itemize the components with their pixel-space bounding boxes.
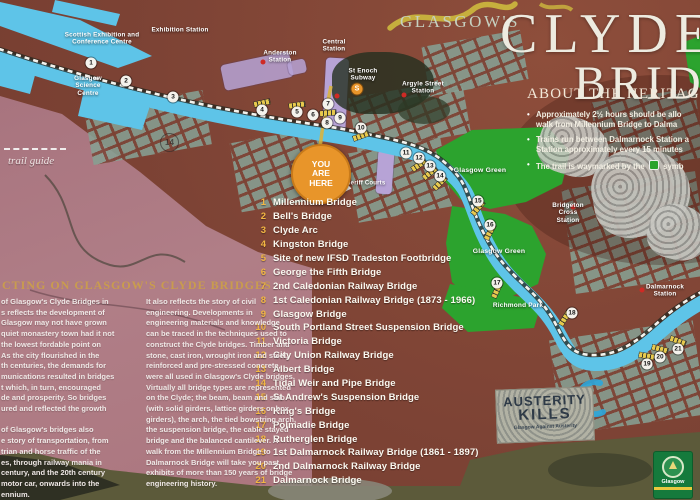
you-are-here-marker: YOU ARE HERE bbox=[291, 144, 351, 204]
bullet-text: symb bbox=[661, 162, 684, 171]
trail-marker-7: 7 bbox=[323, 99, 334, 110]
crest-strip bbox=[654, 487, 692, 490]
dark-patch bbox=[548, 453, 652, 487]
bridge-number: 3 bbox=[250, 225, 266, 236]
bridge-name: Millennium Bridge bbox=[273, 197, 357, 208]
bridge-number: 2 bbox=[250, 211, 266, 222]
heritage-bullet: Trains run between Dalmarnock Station a … bbox=[527, 135, 700, 155]
trail-marker-9: 9 bbox=[335, 113, 346, 124]
map-label: Exhibition Station bbox=[151, 26, 208, 33]
crest-label: Glasgow bbox=[654, 479, 692, 485]
information-board-photo: 14 trail guide Scottish Exhibition and C… bbox=[0, 0, 700, 500]
bridge-list-row: 3Clyde Arc bbox=[250, 224, 485, 238]
bridge-name: Bell's Bridge bbox=[273, 211, 332, 222]
bridge-list-row: 5Site of new IFSD Tradeston Footbridge bbox=[250, 252, 485, 266]
glasgow-crest-logo: Glasgow bbox=[653, 451, 693, 499]
bridge-name: Clyde Arc bbox=[273, 225, 318, 236]
map-label: Bridgeton Cross Station bbox=[552, 202, 584, 224]
bridge-number: 6 bbox=[250, 267, 266, 278]
bridge-list-row: 6George the Fifth Bridge bbox=[250, 265, 485, 279]
trail-legend-dashes bbox=[4, 148, 66, 150]
bridge-list-row: 72nd Caledonian Railway Bridge bbox=[250, 279, 485, 293]
graffiti-number: 14 bbox=[160, 133, 179, 152]
map-label: Central Station bbox=[322, 39, 345, 54]
trail-marker-17: 17 bbox=[492, 278, 503, 289]
bridge-list-row: 1Millennium Bridge bbox=[250, 196, 485, 210]
trail-guide-label: trail guide bbox=[8, 155, 54, 167]
map-label: Richmond Park bbox=[493, 302, 543, 310]
map-label: St Enoch Subway bbox=[349, 68, 378, 83]
bridge-list-row: 4Kingston Bridge bbox=[250, 238, 485, 252]
trail-marker-18: 18 bbox=[567, 308, 578, 319]
map-label: Glasgow Science Centre bbox=[74, 75, 102, 97]
map-label: Scottish Exhibition and Conference Centr… bbox=[65, 32, 140, 47]
trail-marker-6: 6 bbox=[308, 110, 319, 121]
map-label: Dalmarnock Station bbox=[646, 284, 684, 299]
trail-marker-16: 16 bbox=[485, 220, 496, 231]
trail-marker-13: 13 bbox=[425, 161, 436, 172]
heritage-bullet: Approximately 2½ hours should be allo wa… bbox=[527, 110, 700, 130]
map-label: Anderston Station bbox=[263, 50, 296, 65]
map-label: Argyle Street Station bbox=[402, 81, 444, 96]
trail-marker-8: 8 bbox=[322, 118, 333, 129]
waymark-icon bbox=[649, 160, 659, 170]
heritage-section: ABOUT THE HERITAGE Approximately 2½ hour… bbox=[527, 86, 700, 177]
trail-marker-20: 20 bbox=[655, 352, 666, 363]
trail-marker-12: 12 bbox=[414, 153, 425, 164]
trail-marker-3: 3 bbox=[168, 92, 179, 103]
heritage-heading: ABOUT THE HERITAGE bbox=[527, 86, 700, 103]
trail-marker-11: 11 bbox=[401, 148, 412, 159]
trail-marker-10: 10 bbox=[356, 123, 367, 134]
heritage-bullets: Approximately 2½ hours should be allo wa… bbox=[527, 110, 700, 172]
reflecting-column-1: of Glasgow's Clyde Bridges in s reflects… bbox=[1, 297, 143, 500]
trail-marker-14: 14 bbox=[435, 171, 446, 182]
subway-icon: S bbox=[352, 84, 363, 95]
trail-marker-1: 1 bbox=[86, 58, 97, 69]
station-dot bbox=[640, 288, 645, 293]
trail-marker-4: 4 bbox=[257, 105, 268, 116]
bridge-name: 2nd Caledonian Railway Bridge bbox=[273, 281, 417, 292]
bridge-list-row: 2Bell's Bridge bbox=[250, 210, 485, 224]
station-dot bbox=[335, 94, 340, 99]
bridge-number: 1 bbox=[250, 197, 266, 208]
bridge-name: Kingston Bridge bbox=[273, 239, 348, 250]
scratch-graffiti bbox=[45, 175, 185, 267]
trail-marker-19: 19 bbox=[642, 359, 653, 370]
crest-emblem-icon bbox=[662, 456, 684, 478]
bridge-number: 5 bbox=[250, 253, 266, 264]
austerity-sticker: AUSTERITY KILLS Glasgow Against Austerit… bbox=[495, 386, 595, 443]
trail-marker-2: 2 bbox=[121, 76, 132, 87]
reflecting-column-2: It also reflects the story of civil engi… bbox=[146, 297, 310, 490]
bullet-text: The trail is waymarked by the bbox=[536, 162, 647, 171]
heritage-bullet: The trail is waymarked by the symb bbox=[527, 160, 700, 172]
trail-marker-5: 5 bbox=[292, 107, 303, 118]
bridge-number: 4 bbox=[250, 239, 266, 250]
trail-marker-21: 21 bbox=[673, 344, 684, 355]
bridge-name: Site of new IFSD Tradeston Footbridge bbox=[273, 253, 451, 264]
map-label: Glasgow Green bbox=[454, 167, 506, 175]
reflecting-heading: CTING ON GLASGOW'S CLYDE BRIDGES bbox=[2, 278, 272, 293]
bridge-name: George the Fifth Bridge bbox=[273, 267, 381, 278]
